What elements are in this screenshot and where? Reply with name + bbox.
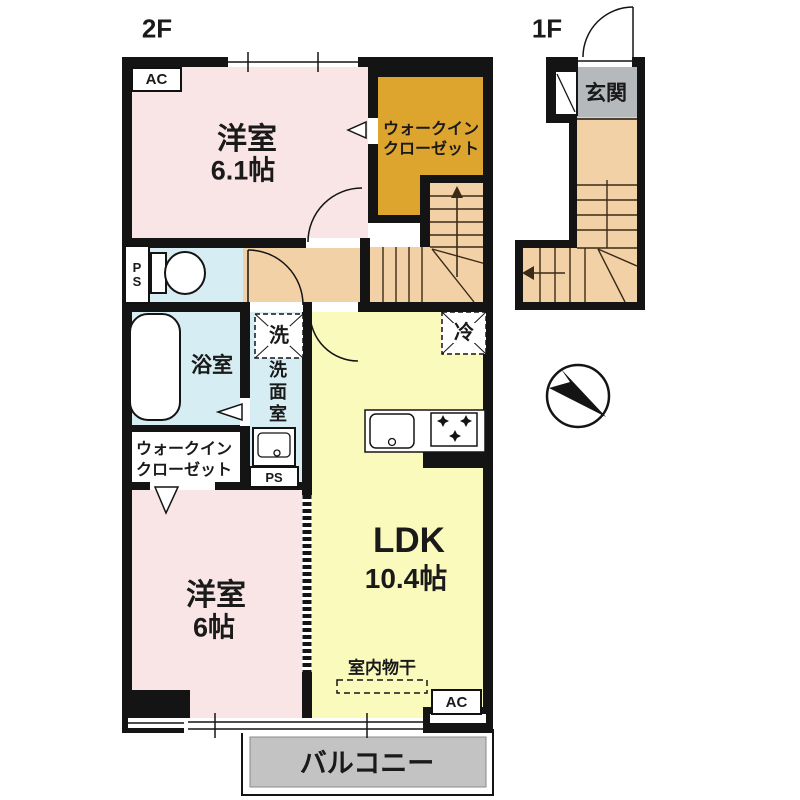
wall-bedroom2-ldk-lower: [302, 672, 312, 720]
window-bedroom2-bottom: [128, 718, 184, 728]
ps-box-toilet: PS: [124, 245, 150, 304]
washbasin-icon: [253, 428, 295, 466]
wall-right: [483, 57, 493, 733]
ldk-size-label: 10.4帖: [365, 557, 448, 597]
floorplan-page: 2F 1F AC 洋室 6.1帖 ウォークイン クローゼット PS 浴室 洗 洗…: [0, 0, 800, 800]
ac-box-ldk: AC: [431, 689, 482, 715]
floor2-label: 2F: [142, 14, 172, 45]
wall-mid: [122, 302, 493, 312]
bedroom2-size-label: 6帖: [193, 606, 235, 645]
ps-box-washroom: PS: [249, 466, 299, 488]
compass-icon: [547, 365, 609, 427]
ac-box-bedroom1: AC: [131, 67, 182, 92]
ldk-name-label: LDK: [373, 521, 445, 561]
bathroom-label: 浴室: [191, 349, 233, 379]
wall-stair-left: [420, 175, 430, 247]
bedroom1-size-label: 6.1帖: [211, 149, 276, 188]
stove-icon: [431, 413, 477, 446]
wall-bedroom1-closet: [368, 67, 378, 223]
wic2-label-line2: クローゼット: [136, 456, 232, 480]
wic1-label-line2: クローゼット: [383, 135, 479, 159]
window-ldk-bottom-right: [430, 714, 486, 723]
wall-kitchen-counter-end: [423, 452, 487, 468]
wall-stair-top: [420, 175, 493, 183]
shoe-cabinet-icon: [555, 67, 577, 115]
balcony-label: バルコニー: [300, 742, 434, 781]
indoor-drying-label: 室内物干: [348, 654, 416, 679]
wall-top-closet: [368, 57, 493, 77]
toilet-icon: [151, 252, 205, 294]
entrance-door-arc: [583, 7, 633, 57]
entrance-doorway: [578, 57, 632, 67]
washer-label: 洗: [268, 326, 290, 346]
fridge-label: 冷: [453, 323, 475, 343]
bathtub-icon: [130, 314, 180, 420]
washroom-label: 洗面室: [264, 360, 290, 426]
kitchen-sink-icon: [370, 414, 414, 448]
wall-hall-stair: [360, 238, 370, 312]
wall-bath-closet2: [122, 425, 245, 432]
wall-bath-washroom: [240, 312, 250, 482]
floor1-label: 1F: [532, 14, 562, 45]
kitchen-counter-icon: [365, 410, 485, 452]
entrance-label: 玄関: [585, 77, 627, 107]
ps-box-toilet-text: PS: [132, 261, 143, 289]
floor1-plan: [515, 7, 645, 310]
